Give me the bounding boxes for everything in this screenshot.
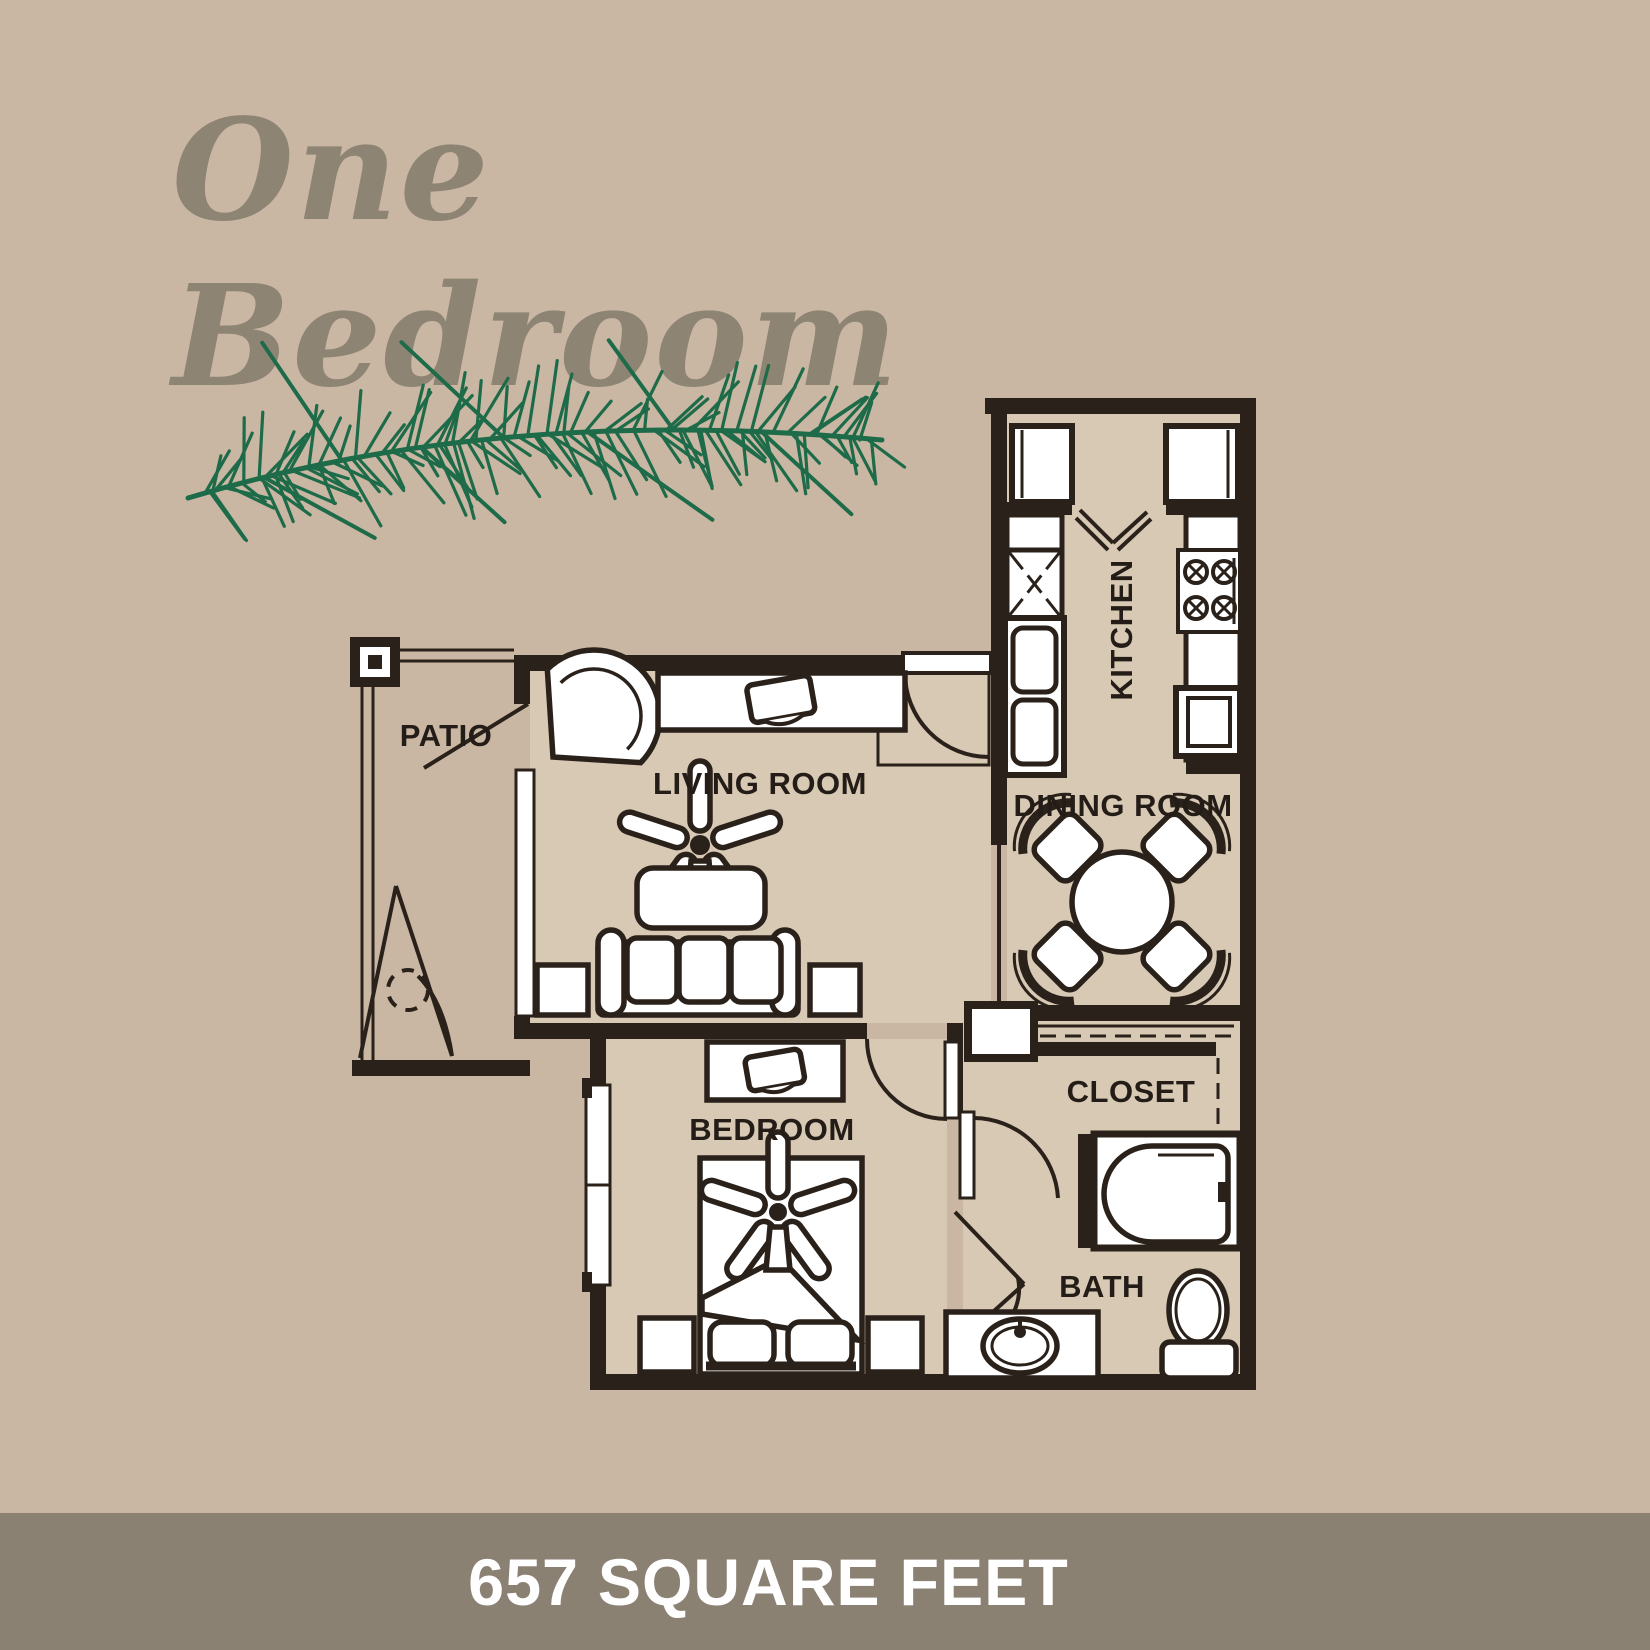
tv-console-icon [658, 673, 905, 730]
label-bedroom: BEDROOM [689, 1112, 854, 1147]
coffee-table-icon [637, 868, 765, 928]
refrigerator-icon [1012, 426, 1072, 502]
floor-plan-page: One Bedroom [0, 0, 1650, 1650]
sliding-door [516, 770, 534, 1016]
floor-plan: PATIO LIVING ROOM KITCHEN DINING ROOM BE… [0, 0, 1650, 1650]
label-patio: PATIO [400, 718, 493, 753]
sofa-icon [598, 930, 798, 1015]
sink-icon [946, 1312, 1098, 1378]
stove-icon [1178, 550, 1240, 632]
closet-door-leaf [960, 1112, 974, 1198]
nightstand-icon [640, 1318, 694, 1372]
pine-branch-icon [188, 340, 905, 540]
square-feet-text: 657 SQUARE FEET [468, 1544, 1069, 1620]
pantry-cabinet-icon [1007, 550, 1062, 618]
bedroom-door-leaf [945, 1042, 959, 1118]
dresser-icon [707, 1042, 843, 1100]
label-living-room: LIVING ROOM [653, 766, 867, 801]
footer-band: 657 SQUARE FEET [0, 1513, 1650, 1650]
kitchen-sink-icon [1005, 618, 1064, 775]
nightstand-icon [868, 1318, 922, 1372]
fridge-2-icon [1166, 426, 1238, 502]
planter-icon [388, 970, 428, 1010]
label-bath: BATH [1059, 1269, 1145, 1304]
window-icon [582, 1078, 610, 1292]
end-table-icon [537, 965, 588, 1015]
label-dining-room: DINING ROOM [1013, 788, 1232, 823]
dishwasher-icon [1176, 688, 1240, 756]
bathtub-icon [1094, 1134, 1240, 1248]
label-closet: CLOSET [1067, 1074, 1196, 1109]
label-kitchen: KITCHEN [1104, 559, 1139, 700]
end-table-icon [810, 965, 860, 1015]
patio-structure [355, 642, 534, 1060]
wall-column [968, 1005, 1034, 1058]
